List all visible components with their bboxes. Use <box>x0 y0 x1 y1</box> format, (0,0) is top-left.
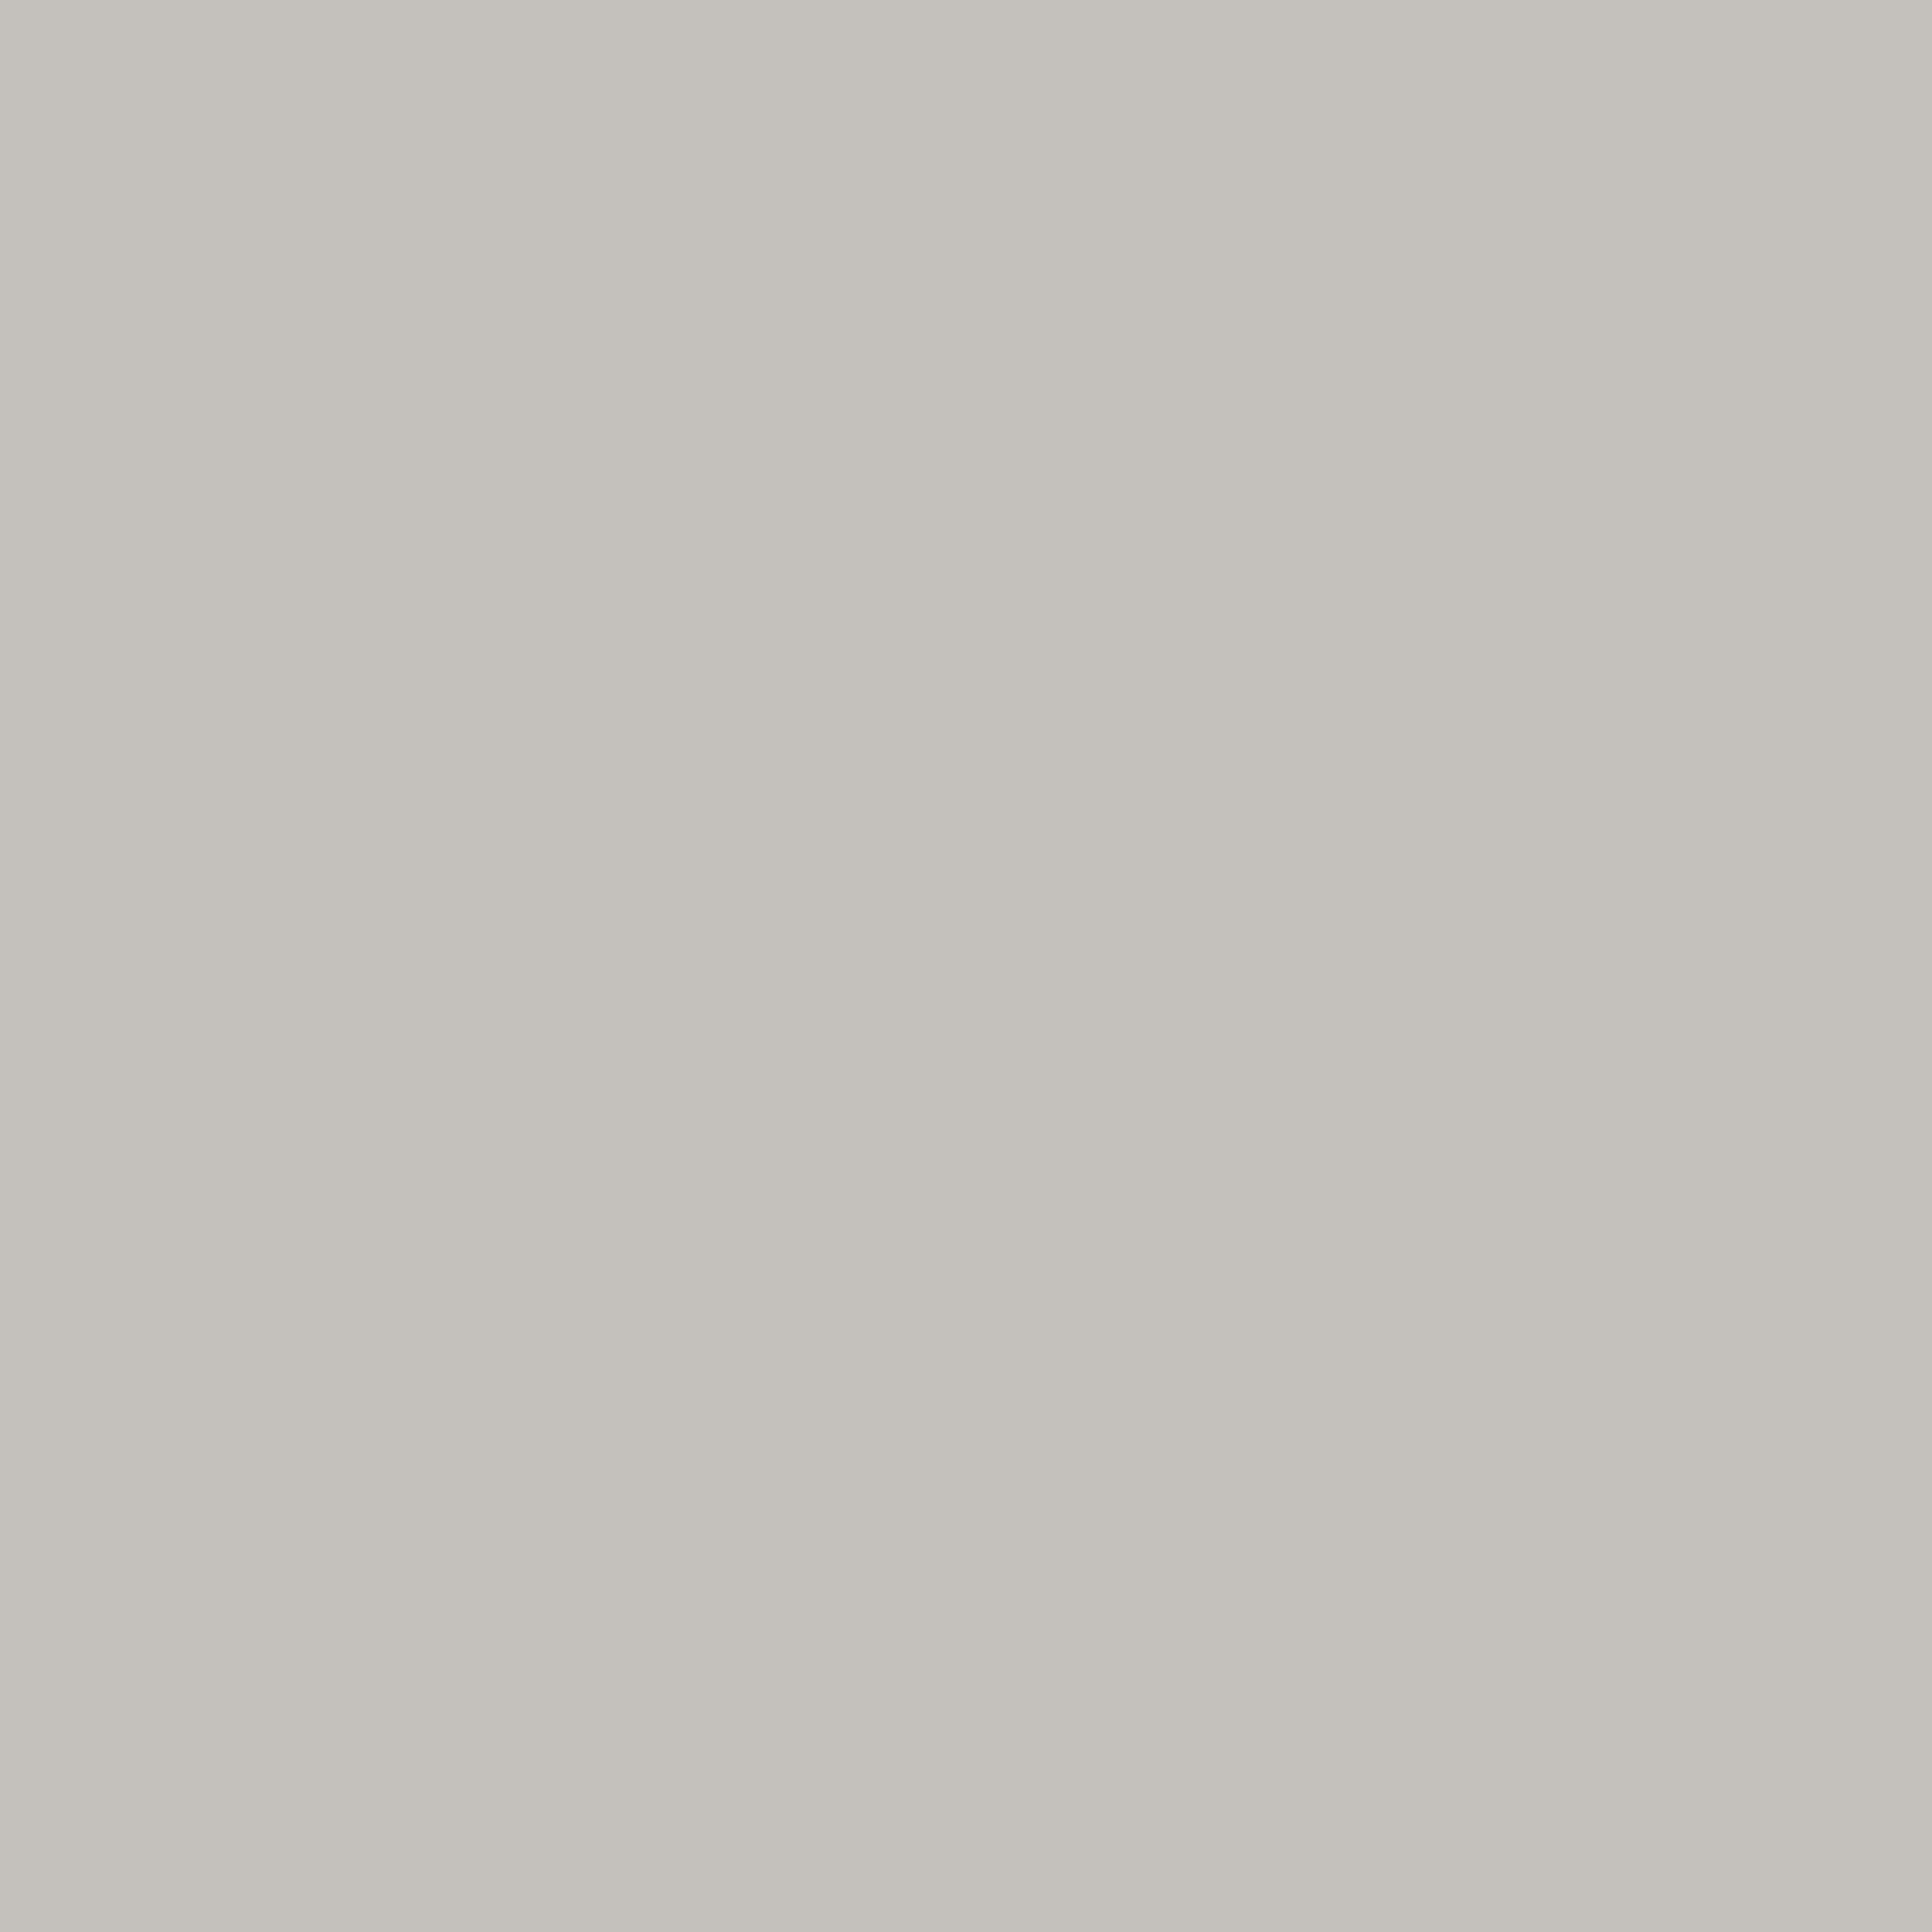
watch-store-display-scene <box>0 0 1932 1932</box>
